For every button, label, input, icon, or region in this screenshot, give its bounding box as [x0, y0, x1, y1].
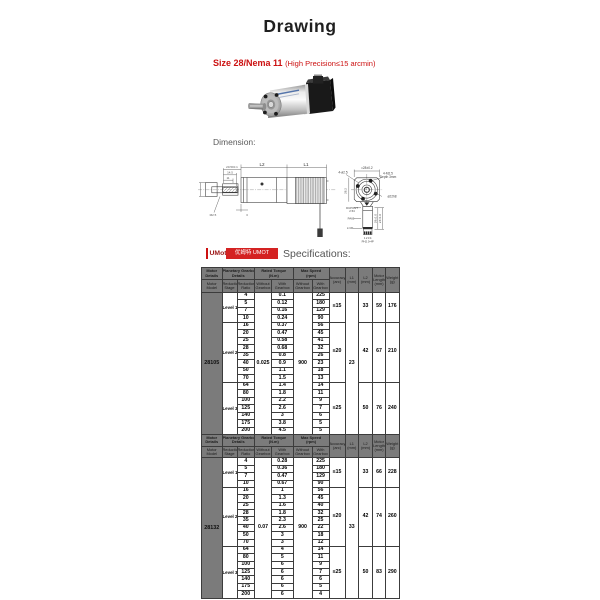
svg-text:L1: L1	[303, 162, 309, 167]
svg-text:Depth 3mm: Depth 3mm	[380, 175, 397, 179]
svg-text:PH2.0-4P: PH2.0-4P	[362, 240, 374, 244]
svg-text:11: 11	[226, 176, 229, 180]
svg-text:ø22h8: ø22h8	[387, 195, 396, 199]
svg-text:14.5: 14.5	[227, 171, 233, 175]
svg-text:28.2: 28.2	[344, 188, 348, 194]
svg-text:2.54: 2.54	[349, 209, 355, 213]
svg-text:20.5±0.1: 20.5±0.1	[226, 165, 238, 169]
svg-text:□28±0.2: □28±0.2	[361, 166, 373, 170]
svg-text:4-ø2.5: 4-ø2.5	[338, 171, 347, 175]
svg-text:L=30: L=30	[347, 226, 354, 230]
svg-text:28±1.0: 28±1.0	[374, 214, 378, 223]
svg-text:M2.5: M2.5	[210, 213, 217, 217]
svg-text:3: 3	[246, 213, 248, 217]
svg-text:24±1.0: 24±1.0	[378, 214, 382, 223]
svg-text:L2: L2	[259, 162, 265, 167]
svg-text:PA66: PA66	[348, 217, 355, 221]
